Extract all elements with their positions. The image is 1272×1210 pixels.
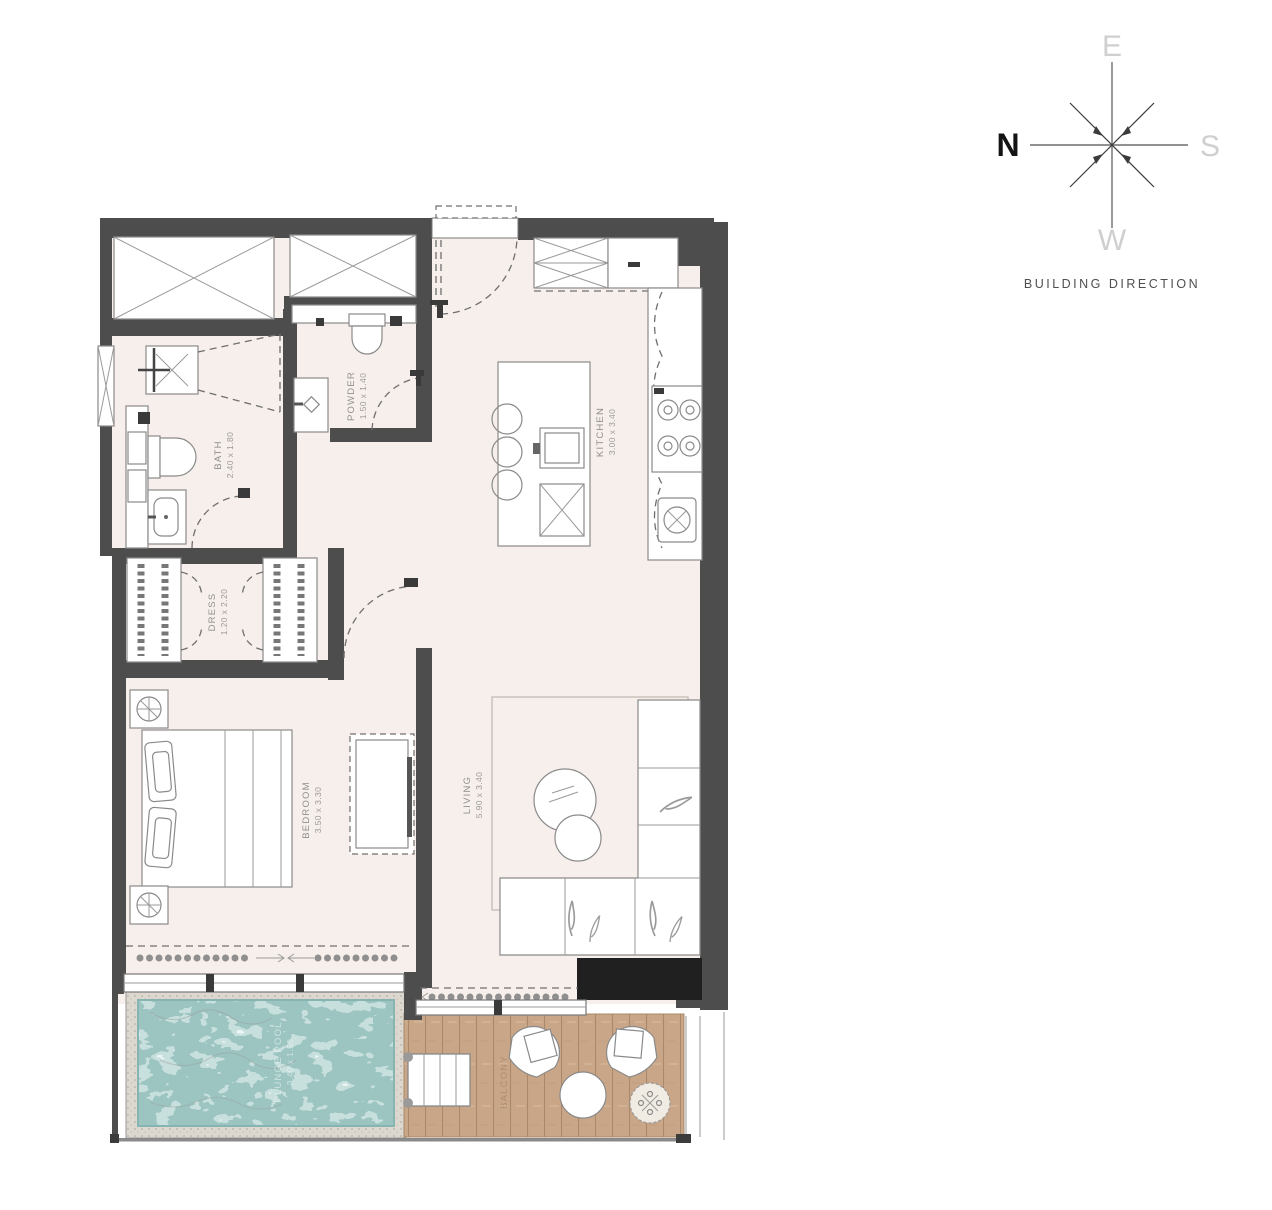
kitchen-island (498, 362, 590, 546)
compass-west: W (1098, 224, 1127, 257)
svg-text:5.90 x 3.40: 5.90 x 3.40 (474, 772, 484, 818)
bed (142, 730, 292, 887)
svg-text:BALCONY: BALCONY (499, 1055, 510, 1109)
plunge-pool (112, 988, 406, 1138)
fridge (608, 238, 678, 288)
building-direction-caption: BUILDING DIRECTION (1024, 277, 1200, 291)
deck-table (560, 1072, 606, 1118)
deck-plant (630, 1083, 670, 1123)
compass-south: S (1200, 130, 1220, 163)
compass-east: E (1102, 30, 1122, 63)
stove (652, 386, 702, 472)
planter-box (577, 958, 702, 1000)
floor-plan-svg: BATH 2.40 x 1.80 POWDER 1.50 x 1.40 KITC… (0, 0, 1272, 1210)
nightstand-bottom (130, 886, 168, 924)
svg-text:POWDER: POWDER (346, 371, 357, 421)
bath-side-unit (126, 406, 150, 548)
label-balcony: BALCONY (499, 1055, 510, 1109)
svg-text:3.40 x 1.50: 3.40 x 1.50 (285, 1039, 295, 1085)
pool-ladder (403, 1052, 470, 1108)
tv-unit (350, 734, 414, 854)
svg-text:2.40 x 1.80: 2.40 x 1.80 (225, 432, 235, 478)
compass-rose: E N S W BUILDING DIRECTION (996, 30, 1220, 291)
compass-north: N (996, 127, 1019, 163)
svg-text:PLUNGE POOL: PLUNGE POOL (273, 1021, 284, 1102)
powder-sink (294, 378, 328, 432)
svg-text:DRESS: DRESS (207, 593, 218, 632)
svg-text:1.50 x 1.40: 1.50 x 1.40 (358, 373, 368, 419)
bath-vanity (148, 490, 186, 544)
svg-text:KITCHEN: KITCHEN (595, 407, 606, 457)
floorplan-page: BATH 2.40 x 1.80 POWDER 1.50 x 1.40 KITC… (0, 0, 1272, 1210)
svg-text:BATH: BATH (213, 440, 224, 469)
svg-text:BEDROOM: BEDROOM (301, 781, 312, 839)
toilet (148, 436, 196, 478)
svg-text:3.00 x 3.40: 3.00 x 3.40 (607, 409, 617, 455)
svg-text:1.20 x 2.20: 1.20 x 2.20 (219, 589, 229, 635)
svg-text:3.50 x 3.30: 3.50 x 3.30 (313, 787, 323, 833)
nightstand-top (130, 690, 168, 728)
svg-text:LIVING: LIVING (462, 776, 473, 814)
